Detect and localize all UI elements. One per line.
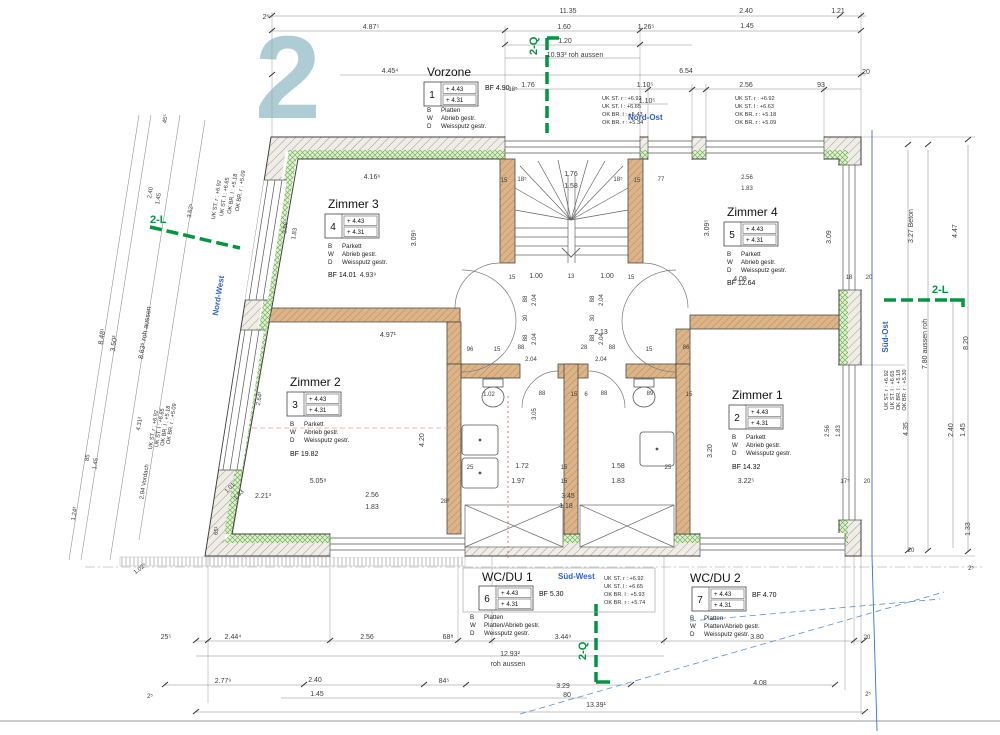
material-value: Abrieb gestr.	[746, 442, 781, 449]
dim-label: 25	[665, 465, 672, 471]
room-card-zimmer3: Zimmer 3 4 + 4.43 + 4.31 BParkett WAbrie…	[325, 197, 388, 279]
dim-label: 4.47	[952, 224, 959, 238]
dim-label: 1.45	[92, 457, 100, 470]
sheet-number-watermark: 2	[255, 12, 321, 144]
dim-label: 2.40	[948, 423, 955, 437]
material-value: Weissputz gestr.	[741, 267, 787, 274]
room-number: 2	[734, 413, 740, 424]
dim-label: 2.77⁹	[215, 678, 232, 685]
dim-label: 1.45	[155, 192, 163, 205]
dim-label: 28	[581, 345, 588, 351]
room-title: WC/DU 1	[482, 570, 533, 584]
dim-label: 25⁵	[161, 634, 172, 641]
dim-label: 8.20	[963, 336, 970, 350]
room-area: BF 14.01	[328, 272, 357, 279]
dim-label: 1.58	[611, 463, 625, 470]
material-key: D	[290, 437, 295, 444]
window-spec-top-right: UK ST. r : +6.92 UK ST. l : +6.63 OK BR.…	[735, 96, 776, 126]
room-area: BF 4.90	[485, 85, 510, 92]
dim-label: 17⁵	[840, 478, 850, 485]
room-elevation: + 4.31	[501, 601, 519, 608]
dim-label: 30	[590, 314, 596, 321]
material-value: Abrieb gestr.	[342, 251, 377, 258]
room-number: 4	[330, 222, 336, 233]
dim-label: 4.93⁹	[360, 272, 377, 279]
dim-label: 1.18	[559, 503, 573, 510]
windows	[219, 136, 862, 557]
dim-label: 2.21³	[255, 493, 272, 500]
room-elevation: + 4.43	[714, 591, 732, 598]
dim-label: roh aussen	[491, 661, 526, 668]
dim-label: 2.04	[532, 333, 538, 345]
dim-label: 20	[908, 548, 915, 554]
dim-label: 3.20	[707, 444, 714, 458]
dim-label: 18⁵	[508, 86, 518, 93]
dim-label: 1.58	[564, 183, 578, 190]
material-key: B	[470, 614, 474, 621]
room-elevation: + 4.43	[746, 226, 764, 233]
room-card-zimmer1: Zimmer 1 2 + 4.43 + 4.31 BParkett WAbrie…	[729, 388, 792, 471]
dim-label: 77	[658, 177, 665, 183]
dim-label: 1.33	[965, 522, 972, 536]
dim-label: 2.40	[739, 8, 753, 15]
facade-label-nordwest: Nord-West	[211, 275, 226, 317]
dim-label: 6.54	[679, 68, 693, 75]
dim-label: 86	[683, 345, 690, 351]
dim-label: 1.45	[310, 691, 324, 698]
dim-label: 88	[539, 391, 546, 397]
room-elevation: + 4.31	[347, 229, 365, 236]
dim-label: 15	[634, 178, 641, 184]
dim-label: 3.44⁹	[555, 634, 572, 641]
dim-label: 4.45⁴	[382, 68, 399, 75]
dim-label: 80	[563, 692, 571, 699]
dim-label: 1.83	[836, 425, 842, 437]
dim-label: 88	[590, 295, 596, 302]
dim-label: 2.56	[825, 425, 831, 437]
dim-label: 2.40	[308, 677, 322, 684]
floor-plan-sheet: 2	[0, 0, 1000, 735]
material-key: W	[427, 115, 433, 122]
material-key: W	[470, 622, 476, 629]
dim-label: 84⁵	[439, 678, 450, 685]
dim-label: 11.35	[560, 8, 577, 15]
dim-label: 2.04	[599, 294, 605, 306]
dim-label: 4.31²	[136, 417, 144, 431]
room-elevation: + 4.43	[751, 409, 769, 416]
room-elevation: + 4.31	[714, 602, 732, 609]
floor-plan-drawing: 2	[0, 0, 1000, 735]
dim-label: 88	[523, 295, 529, 302]
dim-label: 15	[509, 275, 516, 281]
dim-label: 4.20	[419, 433, 426, 447]
material-key: W	[328, 251, 334, 258]
dim-label: 2.40	[147, 186, 155, 199]
material-key: D	[470, 630, 475, 637]
spec-line: OK BR. r : +5.74	[604, 600, 645, 606]
dim-label: 20	[862, 69, 870, 76]
dim-label: 20	[866, 275, 873, 281]
dim-label: 1.45	[960, 423, 967, 437]
material-value: Abrieb gestr.	[741, 259, 776, 266]
material-value: Weissputz gestr.	[746, 450, 792, 457]
dim-label: 3.09	[826, 230, 833, 244]
material-value: Parkett	[304, 421, 324, 428]
dim-label: 3.09⁵	[704, 220, 711, 237]
room-elevation: + 4.43	[446, 86, 464, 93]
dim-label: 15	[494, 347, 501, 353]
dim-label: 8.48¹	[98, 328, 108, 346]
material-value: Abrieb gestr.	[304, 429, 339, 436]
room-elevation: + 4.43	[347, 218, 365, 225]
material-key: W	[732, 442, 738, 449]
dim-label: 3.29	[556, 683, 570, 690]
dim-label: 15	[571, 392, 578, 398]
dim-label: 68⁸	[443, 634, 454, 641]
dim-label: 85	[85, 453, 92, 461]
dim-label: 15	[628, 275, 635, 281]
dim-label: 5.05⁸	[310, 478, 327, 485]
material-value: Parkett	[741, 251, 761, 258]
section-marker-label: 2-Q	[577, 641, 589, 660]
dim-label: 1.60	[557, 24, 571, 31]
dim-label: 8.63⁹ roh aussen	[138, 306, 153, 360]
window-spec-right: UK ST. r : +6.92 UK ST. l : +6.65 OK BR.…	[884, 369, 908, 410]
window-spec-top-left: UK ST. r : +6.92 UK ST. l : +6.65 OK BR.…	[602, 96, 643, 126]
dim-label: 2.94 Vordach	[139, 464, 150, 500]
spec-line: OK BR. r : +5.18	[735, 112, 776, 118]
material-value: Platten	[484, 614, 504, 621]
dim-label: 3.27 Beton	[908, 209, 915, 243]
dim-label: 2.56	[282, 221, 290, 234]
spec-line: UK ST. l : +6.65	[602, 104, 641, 110]
dim-label: 1.00	[529, 273, 543, 280]
room-elevation: + 4.31	[746, 237, 764, 244]
spec-line: OK BR. r : +5.09	[735, 120, 776, 126]
material-key: D	[427, 123, 432, 130]
dim-label: 1.21	[831, 8, 845, 15]
dim-label: 25	[467, 465, 474, 471]
dim-label: 13.39¹	[586, 702, 607, 709]
facade-label-suedwest: Süd-West	[558, 572, 595, 581]
dim-label: 1.00	[600, 273, 614, 280]
dim-label: 4.16⁶	[364, 174, 381, 181]
section-marker-label: 2-Q	[528, 36, 540, 55]
dim-label: 3.09⁵	[411, 230, 418, 247]
dim-label: 3.05	[532, 408, 538, 420]
room-card-wcdu2: WC/DU 2 7 + 4.43 + 4.31 BF 4.70 BPlatten…	[690, 571, 777, 638]
material-value: Platten	[704, 615, 724, 622]
dim-label: 1.83	[611, 478, 625, 485]
dim-label: 1.45	[740, 23, 754, 30]
dim-label: 4.35	[903, 422, 910, 436]
dim-label: 2⁵	[865, 691, 871, 698]
dim-label: 2.04	[532, 294, 538, 306]
dim-label: 6	[584, 392, 588, 398]
dim-label: 15	[561, 479, 568, 485]
material-value: Weissputz gestr.	[342, 259, 388, 266]
room-card-zimmer4: Zimmer 4 5 + 4.43 + 4.31 BParkett WAbrie…	[724, 205, 787, 287]
spec-line: OK BR. l : +5.93	[604, 592, 645, 598]
material-value: Weissputz gestr.	[484, 630, 530, 637]
room-area: BF 14.32	[732, 464, 761, 471]
room-area: BF 4.70	[752, 592, 777, 599]
dim-label: 1.83	[365, 504, 379, 511]
dim-label: 10.93³ roh aussen	[547, 52, 604, 59]
dim-label: 3.52⁵	[186, 203, 195, 219]
dim-label: 20	[864, 479, 871, 485]
material-value: Platten/Abrieb gestr.	[704, 623, 760, 630]
dim-label: 12.93²	[500, 651, 521, 658]
room-number: 5	[729, 230, 735, 241]
dim-label: 1.02	[483, 392, 495, 398]
material-value: Platten	[441, 107, 461, 114]
dim-label: 2.64³	[256, 392, 264, 406]
dim-label: 2⁵	[968, 565, 974, 572]
dim-label: 3.45	[561, 493, 575, 500]
dim-label: 4.08	[753, 680, 767, 687]
material-key: B	[690, 615, 694, 622]
room-area: BF 5.30	[539, 591, 564, 598]
window-spec-left-lower: UK ST. r : +6.92 UK ST. l : +6.65 OK BR.…	[148, 403, 178, 450]
toilet-cistern	[634, 379, 654, 387]
material-key: D	[727, 267, 732, 274]
material-value: Parkett	[342, 243, 362, 250]
spec-line: UK ST. r : +6.92	[604, 576, 644, 582]
dim-label: 2.04	[525, 357, 537, 363]
dim-label: 1.76	[521, 82, 535, 89]
dim-label: 3.80	[750, 634, 764, 641]
dim-label: 15	[561, 465, 568, 471]
room-title: Zimmer 2	[290, 375, 341, 389]
dim-label: 1.83	[741, 186, 753, 192]
material-value: Platten/Abrieb gestr.	[484, 622, 540, 629]
dim-label: 1.97	[511, 478, 525, 485]
room-elevation: + 4.43	[501, 590, 519, 597]
material-key: W	[690, 623, 696, 630]
exterior-walls	[205, 137, 861, 556]
dim-label: 4.08	[733, 276, 747, 283]
material-key: D	[690, 631, 695, 638]
material-key: W	[727, 259, 733, 266]
room-title: Zimmer 1	[732, 388, 783, 402]
spec-line: UK ST. r : +6.92	[735, 96, 775, 102]
toilet-cistern	[483, 379, 503, 387]
dim-label: 30	[523, 314, 529, 321]
dim-label: 15	[646, 347, 653, 353]
dim-label: 28²	[441, 499, 450, 505]
section-marker-label: 2-L	[150, 214, 167, 226]
room-area: BF 19.82	[290, 451, 319, 458]
room-title: Zimmer 3	[328, 197, 379, 211]
room-number: 3	[292, 400, 298, 411]
dim-label: 4.87⁵	[363, 24, 380, 31]
dim-label: 88	[609, 345, 616, 351]
spec-line: OK BR. l : +5.43	[602, 112, 643, 118]
toilet-icon	[633, 387, 655, 407]
dim-label: 2.56	[360, 634, 374, 641]
dim-label: 96	[467, 347, 474, 353]
room-title: Zimmer 4	[727, 205, 778, 219]
spec-line: OK BR. r : +5.30	[902, 369, 908, 410]
dim-label: 1.72	[515, 463, 529, 470]
dim-label: 93	[817, 82, 825, 89]
dim-label: 88	[523, 334, 529, 341]
material-key: B	[732, 434, 736, 441]
dim-label: 20	[864, 635, 871, 641]
material-key: D	[328, 259, 333, 266]
dim-label: 18⁵	[613, 176, 623, 183]
dim-label: 18⁵	[517, 176, 527, 183]
dim-label: 3.22⁵	[738, 478, 755, 485]
section-marker-label: 2-L	[932, 284, 949, 296]
dim-label: 2⁵	[263, 14, 270, 21]
dim-label: 1.26⁵	[638, 24, 655, 31]
spec-line: UK ST. l : +6.63	[735, 104, 774, 110]
dim-label: 89	[647, 391, 654, 397]
dim-label: 2.56	[741, 175, 753, 181]
material-key: W	[290, 429, 296, 436]
material-key: B	[290, 421, 294, 428]
dim-label: 3.50³	[110, 335, 120, 353]
dim-label: 13	[568, 274, 575, 280]
dim-label: 1.76	[564, 171, 578, 178]
window-spec-bottom: UK ST. r : +6.92 UK ST. l : +6.65 OK BR.…	[604, 576, 645, 606]
dim-label: 15	[686, 392, 693, 398]
dim-label: 1.20	[558, 38, 572, 45]
room-number: 1	[429, 90, 435, 101]
dim-label: 1.10⁵	[637, 82, 654, 89]
room-elevation: + 4.31	[309, 407, 327, 414]
dim-label: 88	[601, 391, 608, 397]
material-value: Weissputz gestr.	[441, 123, 487, 130]
room-number: 7	[697, 595, 703, 606]
dim-label: 2.44⁴	[225, 634, 242, 641]
room-elevation: + 4.31	[446, 97, 464, 104]
material-value: Weissputz gestr.	[704, 631, 750, 638]
dim-label: 1.83	[291, 227, 299, 240]
dim-label: 15	[501, 178, 508, 184]
material-value: Parkett	[746, 434, 766, 441]
spec-line: OK BR. r : +5.34	[602, 120, 643, 126]
material-key: B	[328, 243, 332, 250]
room-card-zimmer2: Zimmer 2 3 + 4.43 + 4.31 BParkett WAbrie…	[287, 375, 350, 458]
dim-label: 2.56	[365, 492, 379, 499]
dim-label: 4.97¹	[380, 332, 397, 339]
spec-line: UK ST. l : +6.65	[604, 584, 643, 590]
dim-label: 2.04	[595, 357, 607, 363]
material-value: Weissputz gestr.	[304, 437, 350, 444]
dim-label: 18	[846, 275, 853, 281]
dim-label: 2⁵	[147, 693, 153, 700]
room-title: WC/DU 2	[690, 571, 741, 585]
material-value: Abrieb gestr.	[441, 115, 476, 122]
dim-label: 1.24³	[71, 507, 79, 521]
room-elevation: + 4.31	[751, 420, 769, 427]
facade-label-suedost: Süd-Ost	[881, 321, 890, 352]
dim-label: 2.56	[739, 82, 753, 89]
room-number: 6	[484, 594, 490, 605]
room-elevation: + 4.43	[309, 396, 327, 403]
dim-label: 2.13	[594, 329, 608, 336]
dim-label: 1.10⁵	[639, 98, 656, 105]
room-title: Vorzone	[427, 65, 471, 79]
dim-label: 45⁵	[161, 113, 169, 124]
dim-label: 7.80 aussen roh	[922, 319, 929, 369]
material-key: B	[727, 251, 731, 258]
window-spec-left-upper: UK ST. r : +6.92 UK ST. l : +6.65 OK BR.…	[211, 170, 247, 220]
dim-label: 88	[518, 345, 525, 351]
material-key: B	[427, 107, 431, 114]
spec-line: UK ST. r : +6.92	[602, 96, 642, 102]
material-key: D	[732, 450, 737, 457]
